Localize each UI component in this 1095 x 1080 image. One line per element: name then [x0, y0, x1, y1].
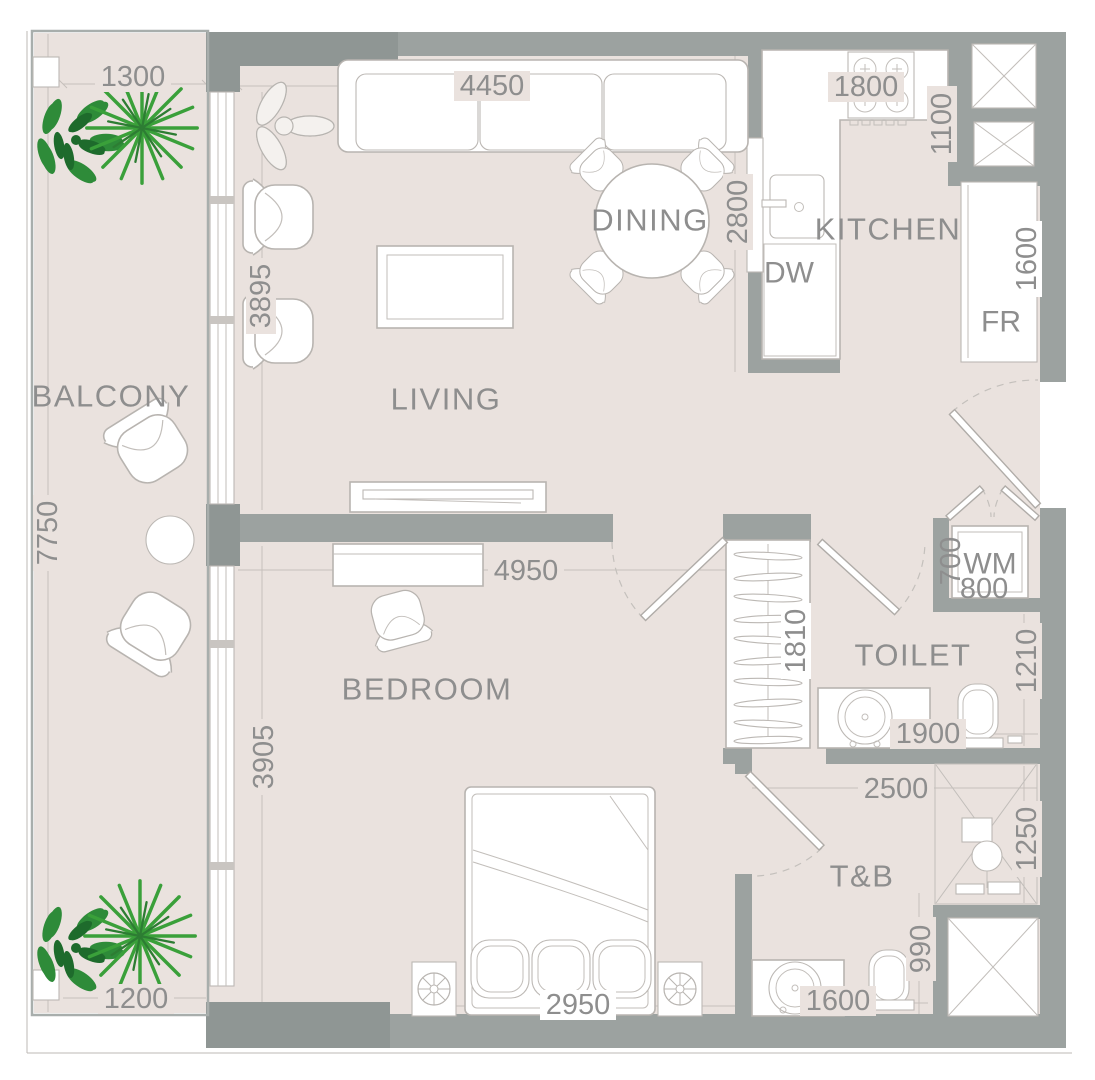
- dim-tb-width: 2500: [858, 773, 934, 805]
- dim-wm-width: 800: [960, 573, 1008, 605]
- dim-shower-side: 1250: [1011, 801, 1043, 877]
- svg-text:7750: 7750: [32, 501, 64, 566]
- armchair: [243, 179, 313, 255]
- svg-text:4950: 4950: [494, 555, 559, 587]
- dim-shaft-height: 1100: [926, 86, 958, 162]
- dining-label: DINING: [591, 203, 709, 238]
- svg-text:4450: 4450: [460, 70, 525, 102]
- svg-text:700: 700: [935, 537, 967, 585]
- plant-icon: [85, 881, 195, 991]
- shaft-icon: [972, 44, 1036, 108]
- dim-bedroom-side: 3905: [248, 719, 280, 795]
- dim-kitchen-depth: 2800: [722, 174, 754, 250]
- shaft-icon: [948, 918, 1038, 1016]
- balcony-post: [33, 57, 59, 87]
- svg-text:3905: 3905: [248, 725, 280, 790]
- svg-text:1200: 1200: [104, 983, 169, 1015]
- svg-text:1900: 1900: [896, 718, 961, 750]
- coffee-table: [377, 246, 513, 328]
- dim-balcony-bottom: 1200: [98, 983, 174, 1015]
- living-label: LIVING: [391, 382, 502, 417]
- bed: [465, 787, 655, 1015]
- svg-text:1100: 1100: [926, 93, 958, 155]
- dim-living-width: 4450: [454, 70, 530, 102]
- svg-text:1250: 1250: [1011, 807, 1043, 872]
- balcony-label: BALCONY: [32, 379, 191, 414]
- svg-text:800: 800: [960, 573, 1008, 605]
- bedroom-label: BEDROOM: [342, 672, 513, 707]
- dim-bedroom-width: 4950: [488, 555, 564, 587]
- ac-unit-icon: [658, 962, 702, 1016]
- dim-toilet-side: 1210: [1011, 623, 1043, 699]
- svg-text:1810: 1810: [780, 609, 812, 674]
- dim-wm-depth: 700: [935, 537, 967, 585]
- dim-kitchen-width: 1800: [828, 71, 904, 103]
- svg-text:1800: 1800: [834, 71, 899, 103]
- dishwasher-label: DW: [764, 257, 815, 290]
- dim-tb-basin: 1600: [800, 985, 876, 1017]
- dim-balcony-height: 7750: [32, 495, 64, 571]
- fridge-label: FR: [981, 306, 1021, 339]
- dim-bed-width: 2950: [540, 989, 616, 1021]
- dim-fridge-side: 1600: [1011, 221, 1043, 297]
- shaft-icon: [974, 122, 1034, 166]
- dim-tb-wc: 990: [905, 917, 937, 981]
- svg-text:1210: 1210: [1011, 629, 1043, 694]
- dim-wardrobe: 1810: [780, 603, 812, 679]
- svg-text:1300: 1300: [101, 61, 166, 93]
- svg-text:1600: 1600: [806, 985, 871, 1017]
- side-table: [146, 516, 194, 564]
- dim-toilet-width: 1900: [890, 718, 966, 750]
- svg-text:3895: 3895: [245, 264, 277, 329]
- desk: [333, 544, 483, 586]
- floor-plan: BALCONY LIVING DINING KITCHEN BEDROOM TO…: [0, 0, 1095, 1080]
- svg-text:990: 990: [905, 925, 937, 973]
- svg-text:2950: 2950: [546, 989, 611, 1021]
- ac-unit-icon: [412, 962, 456, 1016]
- tb-label: T&B: [830, 859, 895, 894]
- sofa: [338, 60, 748, 152]
- kitchen-label: KITCHEN: [815, 212, 962, 247]
- tv-console: [350, 482, 546, 512]
- dim-balcony-top: 1300: [95, 61, 171, 93]
- dim-living-side: 3895: [245, 258, 277, 334]
- living-window: [210, 92, 234, 504]
- sprayer-icon: [1008, 736, 1022, 743]
- bedroom-window: [210, 566, 234, 986]
- svg-text:2800: 2800: [722, 180, 754, 245]
- floor-plan-drawing: BALCONY LIVING DINING KITCHEN BEDROOM TO…: [0, 0, 1095, 1080]
- svg-text:2500: 2500: [864, 773, 929, 805]
- svg-text:1600: 1600: [1011, 227, 1043, 292]
- toilet-label: TOILET: [855, 638, 972, 673]
